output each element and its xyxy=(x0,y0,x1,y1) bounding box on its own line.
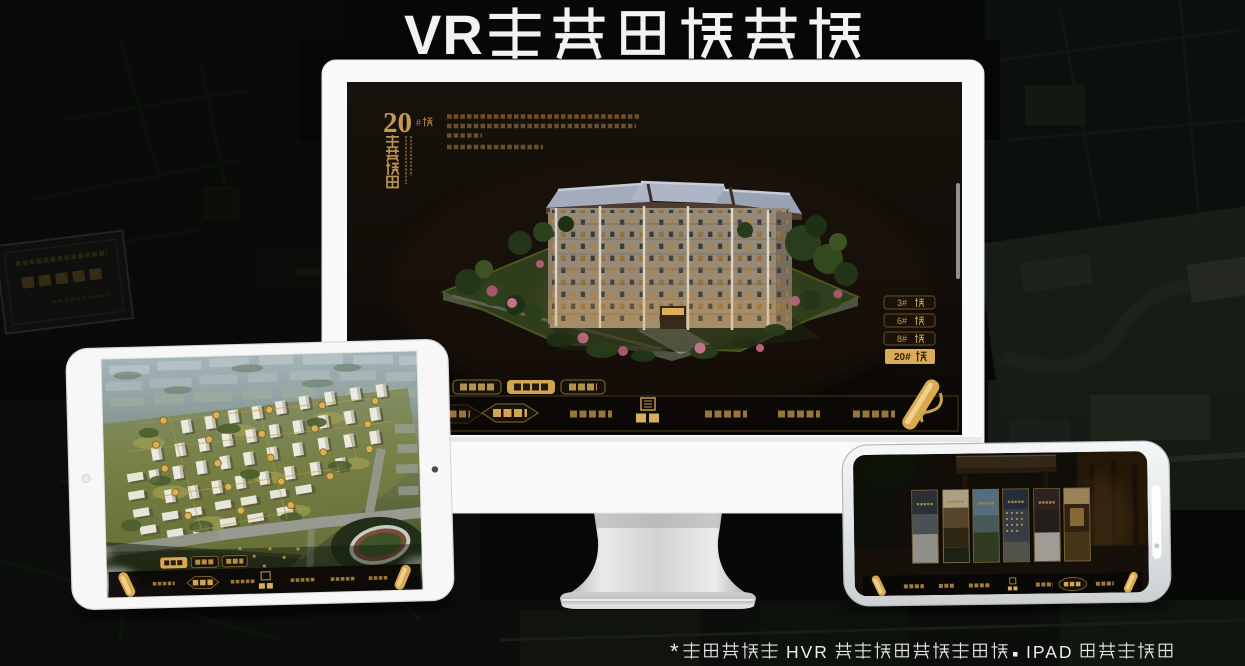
svg-text:IPAD: IPAD xyxy=(1026,642,1074,662)
svg-text:HVR: HVR xyxy=(786,642,829,662)
svg-text:8#: 8# xyxy=(897,334,907,344)
svg-text:*: * xyxy=(670,639,679,664)
svg-text:20: 20 xyxy=(383,107,412,139)
svg-text:20#: 20# xyxy=(894,352,911,363)
svg-text:3#: 3# xyxy=(897,298,907,308)
svg-text:6#: 6# xyxy=(897,316,907,326)
svg-text:VR: VR xyxy=(404,3,484,66)
svg-text:#: # xyxy=(416,118,421,129)
